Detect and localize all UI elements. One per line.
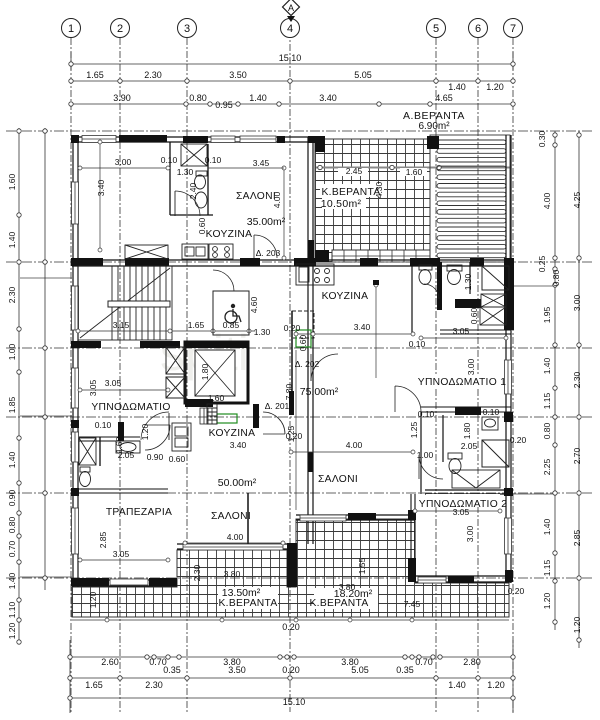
svg-text:1.20: 1.20 bbox=[140, 423, 150, 440]
svg-text:0.10: 0.10 bbox=[418, 409, 435, 419]
svg-text:1.15: 1.15 bbox=[542, 392, 552, 409]
svg-text:4: 4 bbox=[287, 23, 293, 35]
svg-text:0.20: 0.20 bbox=[282, 665, 300, 675]
svg-text:2.05: 2.05 bbox=[461, 441, 478, 451]
svg-text:4.25: 4.25 bbox=[572, 191, 582, 208]
svg-text:3.40: 3.40 bbox=[230, 440, 247, 450]
svg-text:7.80: 7.80 bbox=[284, 383, 294, 400]
svg-text:0.80: 0.80 bbox=[7, 516, 17, 533]
svg-text:1.25: 1.25 bbox=[286, 425, 296, 442]
svg-text:ΤΡΑΠΕΖΑΡΙΑ: ΤΡΑΠΕΖΑΡΙΑ bbox=[106, 507, 172, 518]
svg-text:4.65: 4.65 bbox=[435, 93, 453, 103]
svg-text:0.85: 0.85 bbox=[223, 320, 240, 330]
svg-text:2: 2 bbox=[117, 23, 123, 35]
svg-text:6.90m²: 6.90m² bbox=[418, 121, 450, 132]
svg-text:2.70: 2.70 bbox=[572, 447, 582, 464]
svg-text:Κ.ΒΕΡΑΝΤΑ: Κ.ΒΕΡΑΝΤΑ bbox=[219, 598, 278, 609]
svg-text:1.55: 1.55 bbox=[357, 557, 367, 574]
svg-text:0.60: 0.60 bbox=[298, 334, 308, 351]
svg-text:3.15: 3.15 bbox=[113, 320, 130, 330]
svg-text:3.80: 3.80 bbox=[339, 582, 356, 592]
svg-text:2.30: 2.30 bbox=[7, 286, 17, 303]
svg-text:4.00: 4.00 bbox=[227, 532, 244, 542]
svg-text:0.10: 0.10 bbox=[95, 420, 112, 430]
svg-text:4.00: 4.00 bbox=[272, 191, 282, 208]
svg-text:0.25: 0.25 bbox=[537, 255, 547, 272]
svg-text:1.40: 1.40 bbox=[7, 572, 17, 589]
svg-text:Δ. 202: Δ. 202 bbox=[295, 359, 320, 369]
svg-text:0.10: 0.10 bbox=[161, 155, 178, 165]
svg-text:1.60: 1.60 bbox=[208, 393, 225, 403]
svg-text:3.45: 3.45 bbox=[253, 158, 270, 168]
svg-text:0.80: 0.80 bbox=[551, 269, 561, 286]
svg-text:Δ. 203: Δ. 203 bbox=[256, 248, 281, 258]
svg-text:2.30: 2.30 bbox=[572, 371, 582, 388]
svg-text:ΚΟΥΖΙΝΑ: ΚΟΥΖΙΝΑ bbox=[209, 428, 256, 439]
svg-text:ΚΟΥΖΙΝΑ: ΚΟΥΖΙΝΑ bbox=[322, 291, 369, 302]
svg-text:6: 6 bbox=[475, 23, 481, 35]
svg-text:1.30: 1.30 bbox=[177, 167, 194, 177]
svg-text:1.30: 1.30 bbox=[463, 273, 473, 290]
svg-text:1.25: 1.25 bbox=[409, 421, 419, 438]
svg-text:1.40: 1.40 bbox=[7, 451, 17, 468]
svg-text:1.40: 1.40 bbox=[542, 357, 552, 374]
svg-text:1.40: 1.40 bbox=[249, 93, 267, 103]
svg-text:3.50: 3.50 bbox=[228, 665, 246, 675]
svg-text:1.60: 1.60 bbox=[114, 436, 124, 453]
svg-text:0.90: 0.90 bbox=[147, 452, 164, 462]
svg-text:0.30: 0.30 bbox=[537, 130, 547, 147]
svg-text:0.70: 0.70 bbox=[7, 540, 17, 557]
svg-text:1.60: 1.60 bbox=[406, 167, 423, 177]
svg-text:1.65: 1.65 bbox=[85, 680, 103, 690]
svg-text:35.00m²: 35.00m² bbox=[247, 216, 286, 228]
svg-text:3.05: 3.05 bbox=[113, 549, 130, 559]
svg-text:ΣΑΛΟΝΙ: ΣΑΛΟΝΙ bbox=[211, 511, 251, 522]
svg-text:3.00: 3.00 bbox=[115, 157, 132, 167]
svg-text:0.60: 0.60 bbox=[469, 307, 479, 324]
svg-text:0.60: 0.60 bbox=[197, 217, 207, 234]
svg-text:4.60: 4.60 bbox=[249, 296, 259, 313]
svg-text:2.40: 2.40 bbox=[188, 182, 198, 199]
svg-text:1.20: 1.20 bbox=[88, 591, 98, 608]
svg-text:3.40: 3.40 bbox=[354, 322, 371, 332]
svg-text:3.80: 3.80 bbox=[224, 569, 241, 579]
svg-text:5: 5 bbox=[433, 23, 439, 35]
svg-text:0.20: 0.20 bbox=[284, 323, 301, 333]
svg-text:1.80: 1.80 bbox=[462, 422, 472, 439]
svg-text:1.15: 1.15 bbox=[542, 559, 552, 576]
svg-text:2.60: 2.60 bbox=[101, 657, 119, 667]
svg-text:1.60: 1.60 bbox=[7, 173, 17, 190]
svg-text:4.00: 4.00 bbox=[346, 440, 363, 450]
svg-text:1.80: 1.80 bbox=[200, 363, 210, 380]
svg-text:3.00: 3.00 bbox=[572, 294, 582, 311]
svg-text:A: A bbox=[288, 3, 294, 13]
svg-text:3.50: 3.50 bbox=[229, 70, 247, 80]
svg-text:1.20: 1.20 bbox=[487, 680, 505, 690]
svg-text:15.10: 15.10 bbox=[279, 53, 302, 63]
svg-text:2.30: 2.30 bbox=[145, 680, 163, 690]
svg-text:0.35: 0.35 bbox=[163, 665, 181, 675]
svg-text:3.00: 3.00 bbox=[465, 525, 475, 542]
svg-text:0.90: 0.90 bbox=[7, 489, 17, 506]
svg-text:0.20: 0.20 bbox=[510, 435, 527, 445]
svg-text:0.20: 0.20 bbox=[508, 586, 525, 596]
svg-text:1.40: 1.40 bbox=[7, 231, 17, 248]
svg-text:1.20: 1.20 bbox=[542, 592, 552, 609]
svg-text:10.50m²: 10.50m² bbox=[321, 198, 362, 210]
svg-text:Δ. 201: Δ. 201 bbox=[265, 401, 290, 411]
svg-text:7: 7 bbox=[510, 23, 516, 35]
svg-text:0.10: 0.10 bbox=[205, 155, 222, 165]
svg-text:2.85: 2.85 bbox=[572, 529, 582, 546]
svg-text:1.65: 1.65 bbox=[86, 70, 104, 80]
svg-text:1.20: 1.20 bbox=[486, 82, 504, 92]
svg-text:4.00: 4.00 bbox=[542, 192, 552, 209]
svg-text:3.40: 3.40 bbox=[319, 93, 337, 103]
svg-text:2.85: 2.85 bbox=[98, 531, 108, 548]
svg-text:ΥΠΝΟΔΩΜΑΤΙΟ: ΥΠΝΟΔΩΜΑΤΙΟ bbox=[91, 402, 170, 413]
svg-text:50.00m²: 50.00m² bbox=[218, 477, 257, 489]
svg-text:1.30: 1.30 bbox=[254, 327, 271, 337]
svg-text:1.00: 1.00 bbox=[417, 450, 434, 460]
svg-text:3.05: 3.05 bbox=[453, 326, 470, 336]
svg-text:ΣΑΛΟΝΙ: ΣΑΛΟΝΙ bbox=[318, 474, 358, 485]
svg-text:3.40: 3.40 bbox=[96, 179, 106, 196]
svg-text:3.05: 3.05 bbox=[453, 507, 470, 517]
svg-text:2.45: 2.45 bbox=[346, 166, 363, 176]
svg-text:0.80: 0.80 bbox=[542, 422, 552, 439]
svg-text:7.45: 7.45 bbox=[404, 599, 421, 609]
svg-text:0.95: 0.95 bbox=[215, 100, 233, 110]
svg-text:1.40: 1.40 bbox=[448, 680, 466, 690]
svg-text:0.70: 0.70 bbox=[415, 657, 433, 667]
svg-text:1.00: 1.00 bbox=[7, 343, 17, 360]
svg-text:1.40: 1.40 bbox=[448, 82, 466, 92]
svg-text:3.00: 3.00 bbox=[466, 358, 476, 375]
svg-text:15.10: 15.10 bbox=[283, 697, 306, 707]
svg-text:0.80: 0.80 bbox=[189, 93, 207, 103]
svg-text:3.05: 3.05 bbox=[88, 379, 98, 396]
svg-text:1.85: 1.85 bbox=[7, 396, 17, 413]
svg-text:5.05: 5.05 bbox=[354, 70, 372, 80]
svg-text:3: 3 bbox=[184, 23, 190, 35]
svg-text:ΚΟΥΖΙΝΑ: ΚΟΥΖΙΝΑ bbox=[206, 229, 253, 240]
svg-text:ΥΠΝΟΔΩΜΑΤΙΟ 1: ΥΠΝΟΔΩΜΑΤΙΟ 1 bbox=[418, 377, 506, 388]
svg-text:13.50m²: 13.50m² bbox=[222, 587, 261, 599]
svg-text:0.60: 0.60 bbox=[169, 454, 186, 464]
svg-text:2.30: 2.30 bbox=[192, 564, 202, 581]
svg-text:1.10: 1.10 bbox=[7, 601, 17, 618]
svg-text:0.10: 0.10 bbox=[483, 407, 500, 417]
svg-text:1: 1 bbox=[68, 23, 74, 35]
svg-text:3.90: 3.90 bbox=[113, 93, 131, 103]
svg-text:1.20: 1.20 bbox=[7, 622, 17, 639]
svg-text:1.40: 1.40 bbox=[542, 518, 552, 535]
svg-text:0.10: 0.10 bbox=[409, 339, 426, 349]
svg-text:0.20: 0.20 bbox=[282, 622, 300, 632]
svg-text:ΣΑΛΟΝΙ: ΣΑΛΟΝΙ bbox=[236, 191, 276, 202]
svg-text:1.65: 1.65 bbox=[188, 320, 205, 330]
svg-text:Κ.ΒΕΡΑΝΤΑ: Κ.ΒΕΡΑΝΤΑ bbox=[322, 187, 381, 198]
svg-text:0.35: 0.35 bbox=[396, 665, 414, 675]
svg-text:2.25: 2.25 bbox=[542, 458, 552, 475]
svg-text:2.80: 2.80 bbox=[463, 657, 481, 667]
svg-text:4.30: 4.30 bbox=[374, 181, 384, 198]
svg-text:1.95: 1.95 bbox=[542, 306, 552, 323]
svg-text:1.20: 1.20 bbox=[572, 616, 582, 633]
svg-text:3.05: 3.05 bbox=[105, 378, 122, 388]
svg-text:2.30: 2.30 bbox=[144, 70, 162, 80]
svg-text:75.00m²: 75.00m² bbox=[300, 386, 339, 398]
svg-text:5.05: 5.05 bbox=[351, 665, 369, 675]
